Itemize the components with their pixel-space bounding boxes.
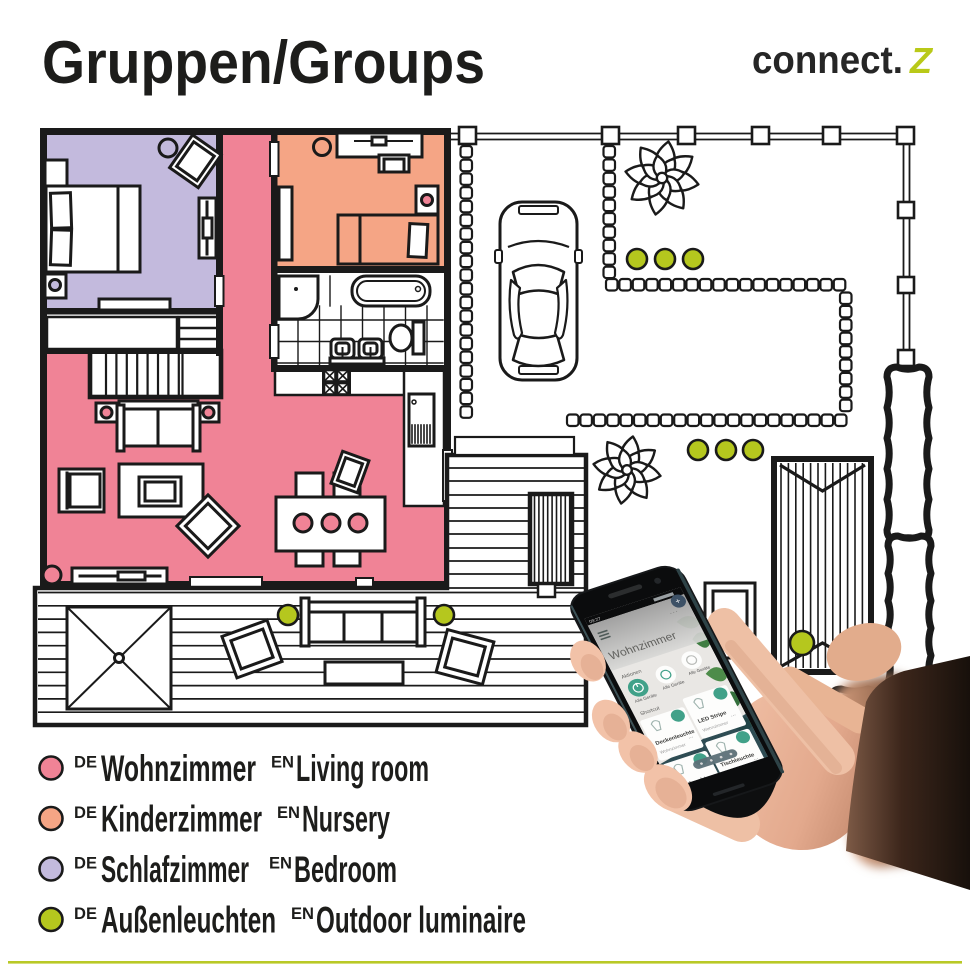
svg-text:EN: EN: [269, 854, 292, 873]
svg-text:Z: Z: [909, 40, 934, 81]
svg-text:Living room: Living room: [296, 748, 429, 789]
svg-text:EN: EN: [271, 753, 294, 772]
svg-text:Gruppen/Groups: Gruppen/Groups: [42, 29, 485, 96]
svg-text:DE: DE: [74, 854, 97, 873]
svg-text:DE: DE: [74, 904, 97, 923]
svg-text:DE: DE: [74, 753, 97, 772]
svg-text:Kinderzimmer: Kinderzimmer: [101, 799, 262, 840]
svg-text:EN: EN: [291, 904, 314, 923]
svg-text:Außenleuchten: Außenleuchten: [101, 900, 276, 941]
svg-text:connect.: connect.: [752, 39, 903, 82]
svg-text:Wohnzimmer: Wohnzimmer: [101, 748, 256, 789]
svg-text:Outdoor luminaire: Outdoor luminaire: [316, 900, 526, 941]
svg-text:Schlafzimmer: Schlafzimmer: [101, 849, 249, 890]
svg-text:DE: DE: [74, 803, 97, 822]
svg-text:Bedroom: Bedroom: [294, 849, 397, 890]
svg-text:Nursery: Nursery: [302, 799, 390, 840]
svg-text:EN: EN: [277, 803, 300, 822]
